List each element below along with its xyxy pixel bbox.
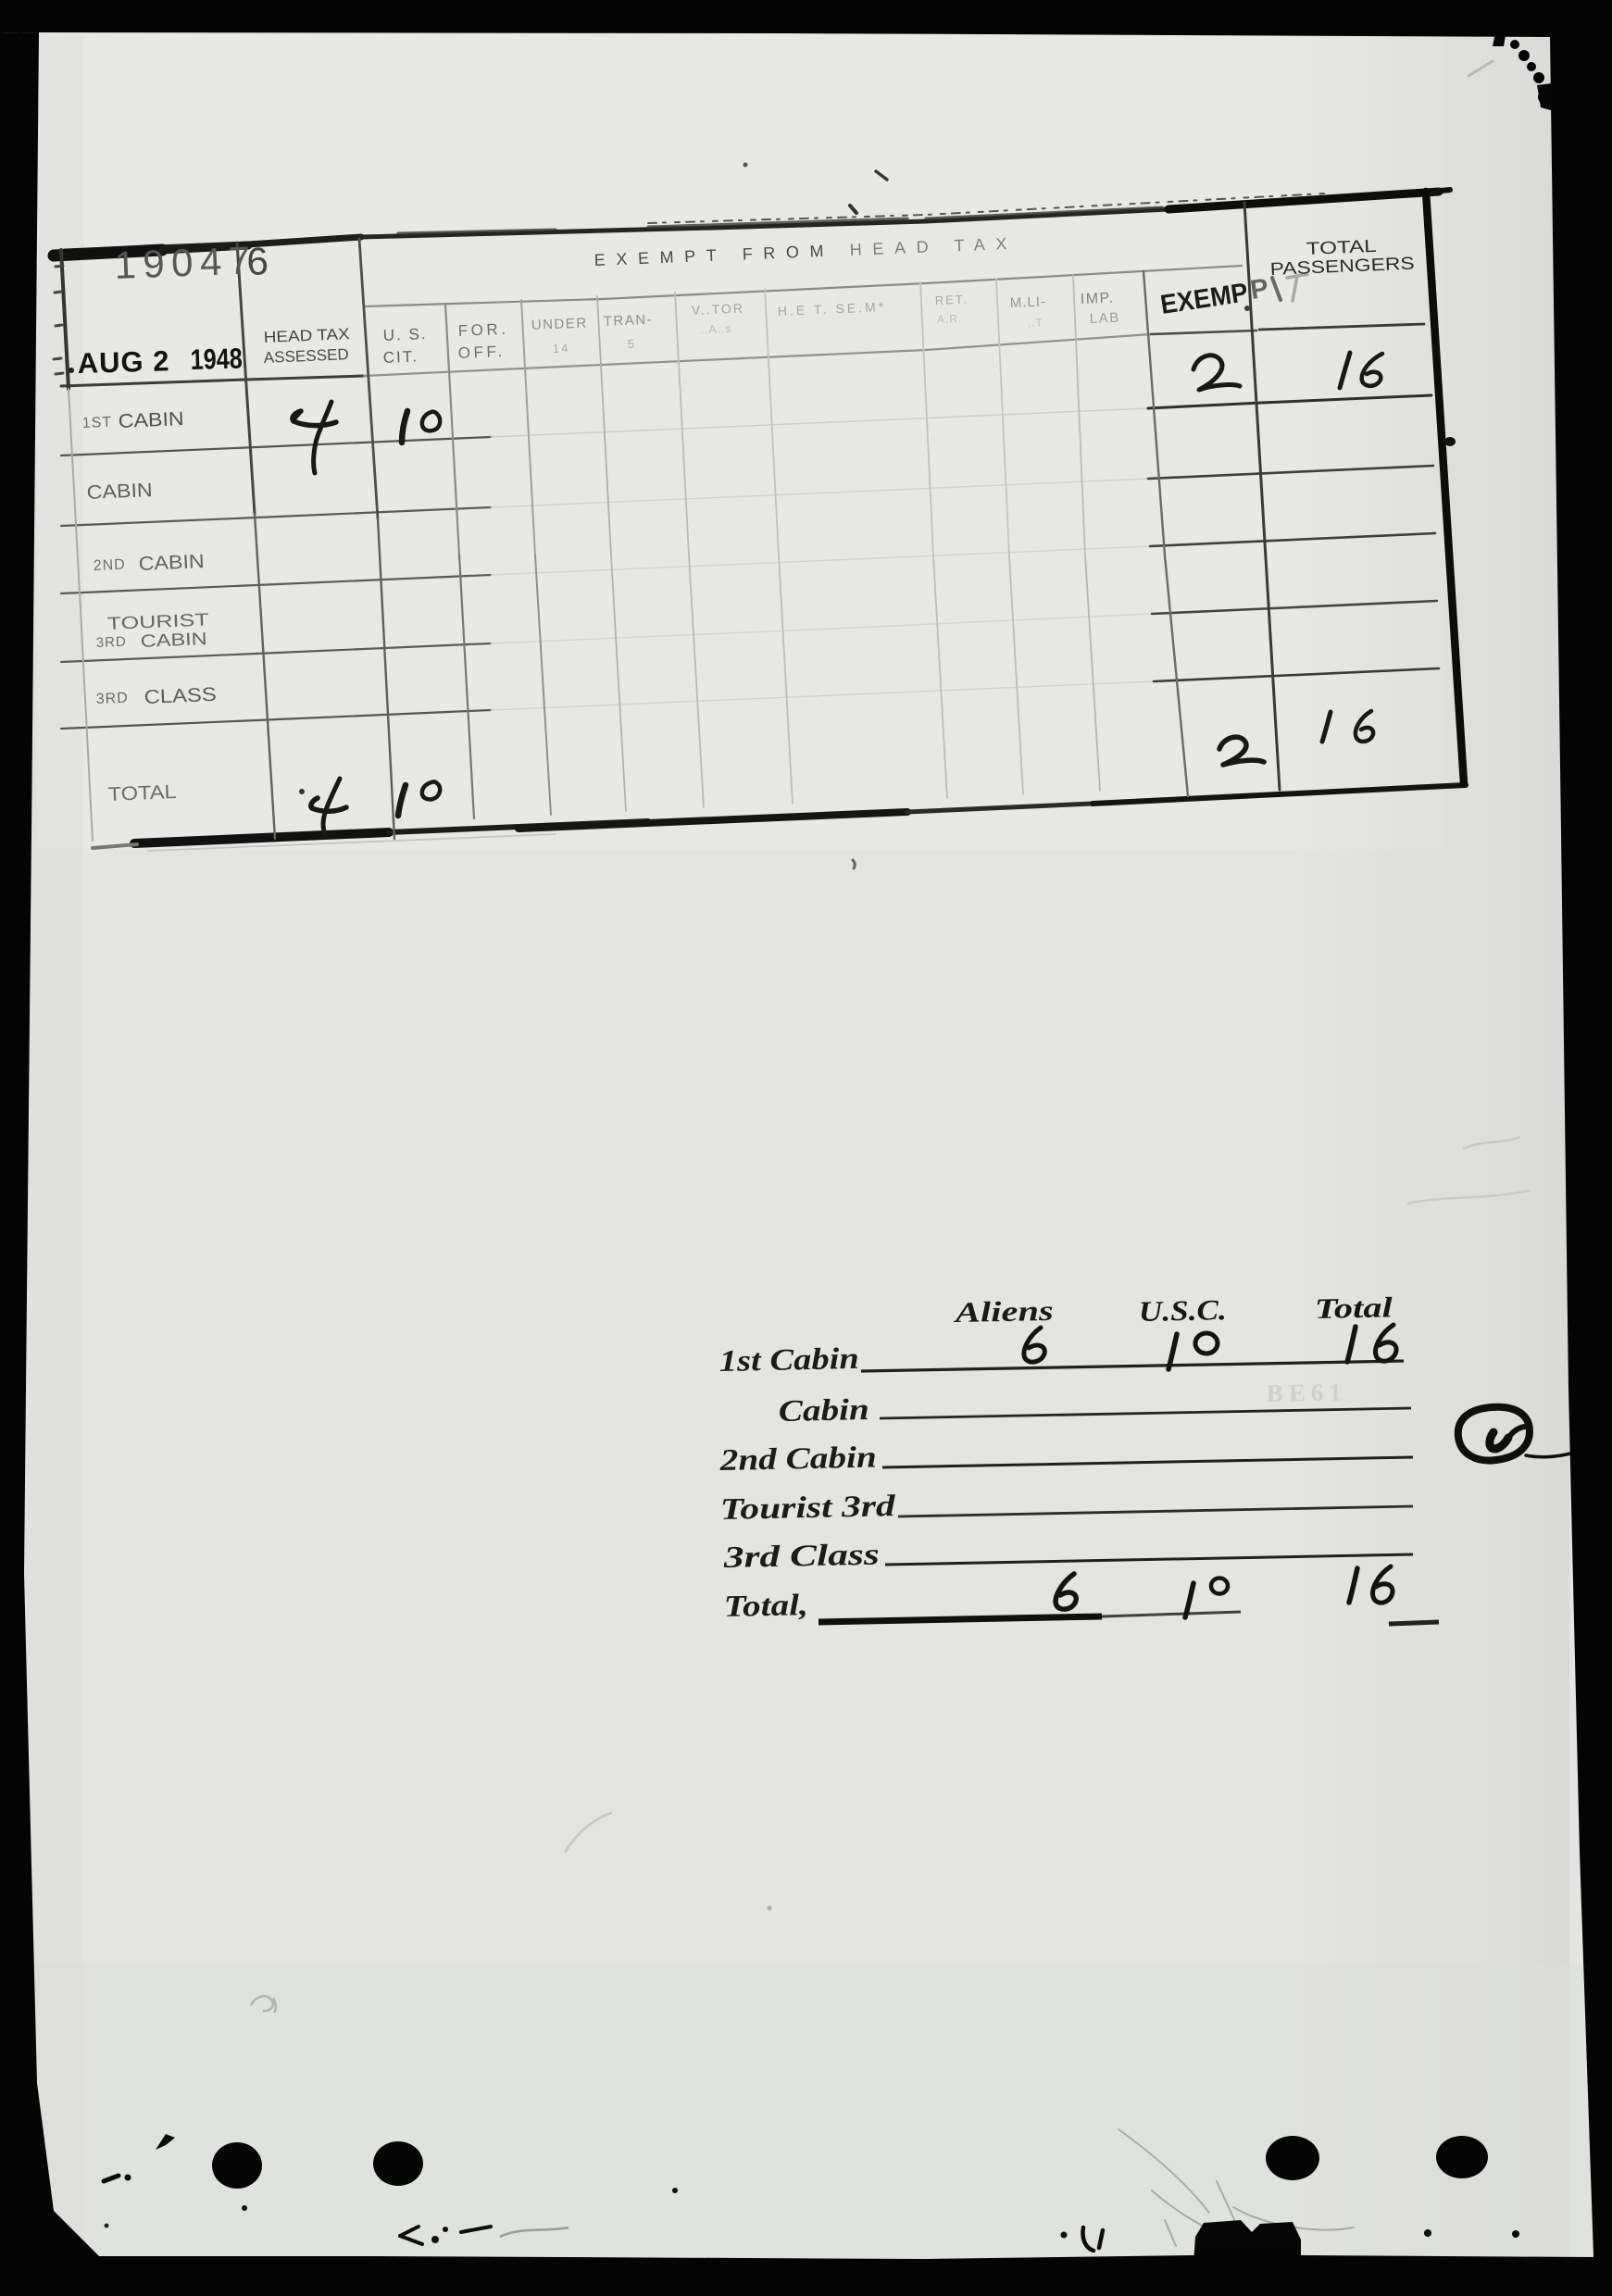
svg-text:M.LI-: M.LI- [1009,293,1046,311]
svg-text:5: 5 [627,337,636,351]
svg-text:Aliens: Aliens [953,1294,1054,1329]
svg-text:1ST: 1ST [81,415,112,431]
svg-text:CIT.: CIT. [382,347,419,367]
svg-text:3RD: 3RD [95,634,127,651]
svg-text:UNDER: UNDER [531,315,588,333]
svg-text:U.S.C.: U.S.C. [1138,1293,1227,1328]
svg-text:CABIN: CABIN [118,408,184,432]
svg-text:CABIN: CABIN [140,630,207,652]
svg-text:AUG 2: AUG 2 [77,344,170,380]
svg-text:IMP.: IMP. [1080,290,1115,307]
svg-text:3RD: 3RD [95,691,129,707]
svg-text:Tourist 3rd: Tourist 3rd [719,1490,895,1527]
svg-text:A.R.: A.R. [937,312,963,326]
svg-text:..A..s: ..A..s [701,322,732,336]
svg-text:19047: 19047 [114,238,258,287]
svg-text:FOR.: FOR. [457,320,508,340]
svg-text:2ND: 2ND [93,557,126,574]
svg-text:14: 14 [552,341,569,356]
svg-text:TRAN-: TRAN- [603,312,653,330]
svg-text:LAB: LAB [1089,310,1120,327]
svg-text:..T: ..T [1028,316,1044,330]
svg-text:1948: 1948 [190,342,243,376]
svg-text:ASSESSED: ASSESSED [263,345,349,367]
svg-text:OFF.: OFF. [457,343,506,362]
svg-text:6: 6 [246,239,269,283]
svg-text:CLASS: CLASS [144,684,217,708]
svg-text:HEAD TAX: HEAD TAX [263,325,350,346]
svg-text:3rd Class: 3rd Class [722,1538,880,1575]
svg-text:TOTAL: TOTAL [107,781,177,805]
svg-text:Total,: Total, [723,1589,808,1624]
svg-text:Total: Total [1314,1291,1393,1325]
svg-text:1st Cabin: 1st Cabin [719,1342,859,1379]
svg-text:U. S.: U. S. [382,325,428,344]
svg-text:BE61: BE61 [1267,1378,1348,1407]
svg-text:CABIN: CABIN [86,480,153,504]
svg-text:2nd Cabin: 2nd Cabin [719,1441,877,1478]
svg-text:RET.: RET. [934,292,968,307]
svg-text:Cabin: Cabin [778,1393,869,1429]
svg-text:CABIN: CABIN [138,551,205,575]
svg-text:V..TOR: V..TOR [691,301,744,318]
